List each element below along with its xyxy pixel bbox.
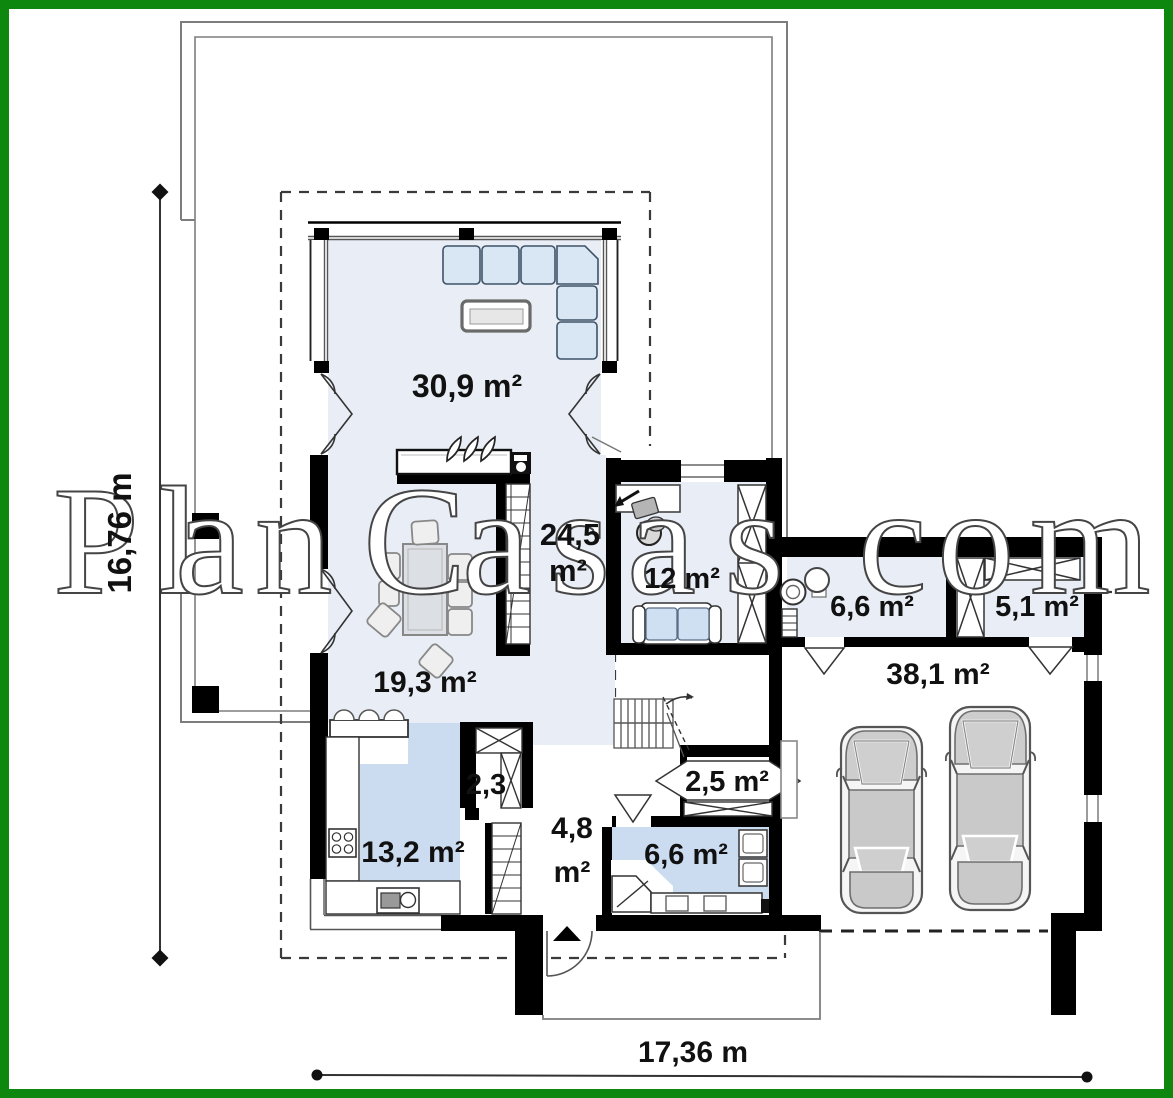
svg-text:13,2 m²: 13,2 m² bbox=[361, 836, 464, 869]
svg-text:4,8: 4,8 bbox=[551, 812, 593, 845]
svg-text:17,36 m: 17,36 m bbox=[638, 1036, 748, 1069]
svg-text:30,9 m²: 30,9 m² bbox=[412, 368, 522, 404]
svg-text:24,5: 24,5 bbox=[540, 517, 600, 552]
svg-text:6,6 m²: 6,6 m² bbox=[830, 591, 914, 623]
svg-text:m²: m² bbox=[549, 553, 587, 588]
svg-text:38,1 m²: 38,1 m² bbox=[886, 658, 989, 691]
svg-text:16,76 m: 16,76 m bbox=[101, 472, 138, 593]
svg-text:5,1 m²: 5,1 m² bbox=[995, 591, 1079, 623]
svg-text:PlanCasascom: PlanCasascom bbox=[53, 455, 1151, 627]
svg-text:6,6 m²: 6,6 m² bbox=[644, 839, 728, 871]
svg-text:12 m²: 12 m² bbox=[644, 563, 720, 595]
svg-text:19,3 m²: 19,3 m² bbox=[373, 666, 476, 699]
svg-text:m²: m² bbox=[554, 856, 591, 889]
svg-text:2,5 m²: 2,5 m² bbox=[685, 766, 769, 798]
svg-text:2,3: 2,3 bbox=[466, 769, 506, 801]
